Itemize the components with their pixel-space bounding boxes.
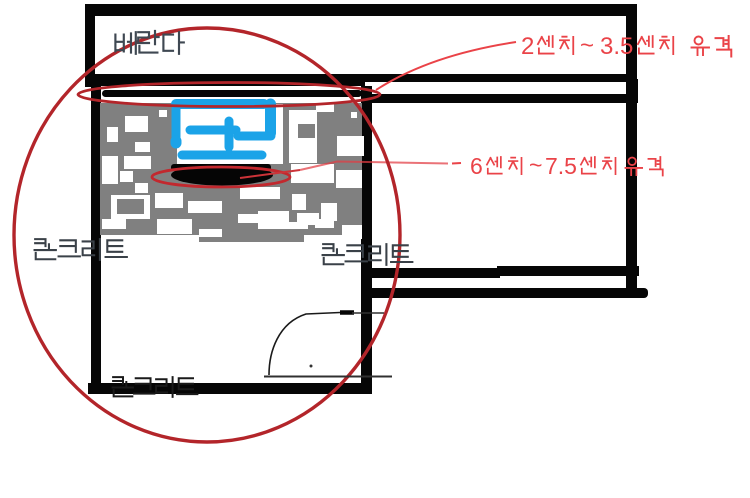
svg-text:6: 6 (470, 153, 483, 179)
svg-text:7.5: 7.5 (545, 153, 577, 179)
svg-text:~: ~ (529, 152, 542, 178)
svg-text:~: ~ (580, 32, 594, 59)
svg-text:3.5: 3.5 (600, 33, 633, 60)
svg-text:2: 2 (521, 33, 534, 60)
